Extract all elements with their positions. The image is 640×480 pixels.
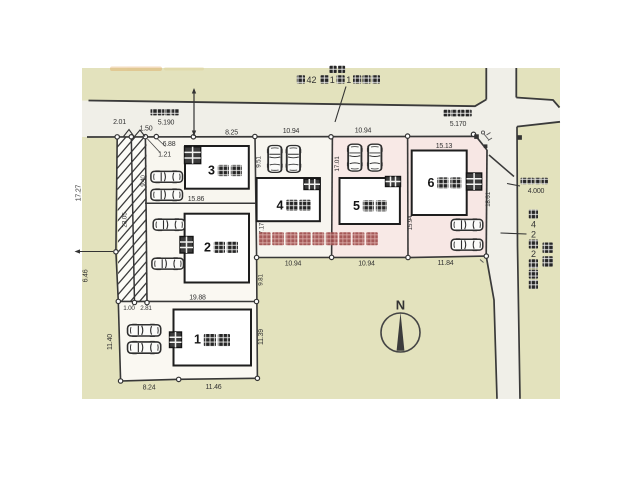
svg-text:1.00: 1.00 [123, 305, 135, 312]
svg-text:9.81: 9.81 [258, 274, 265, 286]
svg-text:5.170: 5.170 [450, 121, 467, 128]
svg-text:42: 42 [306, 75, 316, 85]
svg-text:15.13: 15.13 [436, 143, 453, 150]
svg-text:9.40: 9.40 [140, 175, 147, 187]
svg-text:2: 2 [531, 230, 536, 240]
svg-text:8.25: 8.25 [225, 130, 238, 137]
svg-text:1: 1 [346, 75, 351, 85]
svg-text:23.05: 23.05 [122, 212, 129, 228]
svg-text:1: 1 [194, 333, 201, 347]
svg-text:4.000: 4.000 [528, 188, 545, 195]
svg-text:17.27: 17.27 [76, 184, 83, 201]
svg-text:17.01: 17.01 [334, 156, 341, 172]
svg-text:N: N [396, 298, 405, 313]
svg-text:4: 4 [277, 198, 284, 212]
svg-text:4: 4 [531, 220, 536, 230]
svg-text:5: 5 [353, 199, 360, 213]
svg-text:11.46: 11.46 [206, 384, 222, 391]
svg-text:10.94: 10.94 [285, 261, 302, 268]
svg-text:3: 3 [208, 164, 215, 178]
svg-text:15.86: 15.86 [188, 196, 205, 203]
svg-text:2: 2 [204, 240, 211, 254]
svg-text:11.84: 11.84 [438, 260, 454, 267]
svg-text:1.21: 1.21 [158, 152, 171, 159]
svg-text:6: 6 [428, 176, 435, 190]
svg-text:9.51: 9.51 [256, 156, 263, 168]
svg-text:10.94: 10.94 [358, 261, 375, 268]
svg-text:19.88: 19.88 [189, 295, 206, 302]
svg-text:6.88: 6.88 [163, 141, 176, 148]
svg-text:5.190: 5.190 [158, 120, 175, 127]
svg-text:18.61: 18.61 [485, 191, 492, 206]
svg-text:11.39: 11.39 [258, 329, 265, 345]
svg-text:6.46: 6.46 [83, 269, 90, 282]
svg-text:1: 1 [330, 75, 335, 85]
svg-text:2.01: 2.01 [113, 119, 126, 126]
svg-text:2.81: 2.81 [140, 305, 152, 312]
svg-text:11.40: 11.40 [107, 334, 114, 350]
svg-text:10.94: 10.94 [283, 128, 300, 135]
svg-text:10.94: 10.94 [355, 128, 372, 135]
svg-text:15.94: 15.94 [407, 215, 414, 230]
svg-text:8.24: 8.24 [143, 385, 156, 392]
svg-text:2: 2 [531, 249, 536, 259]
svg-text:1.50: 1.50 [140, 126, 153, 133]
